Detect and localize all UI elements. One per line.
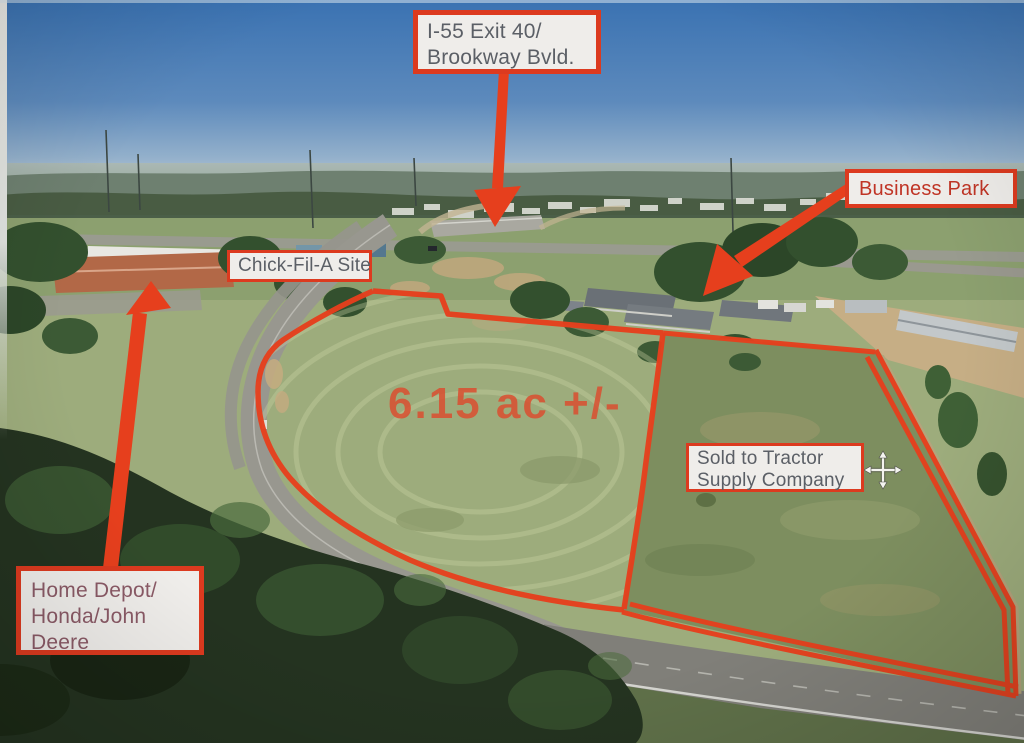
callout-sold-line1: Sold to Tractor [697, 448, 853, 470]
callout-home-depot-line3: Deere [31, 630, 189, 656]
callout-sold-line2: Supply Company [697, 470, 853, 492]
callout-i55-line2: Brookway Bvld. [427, 45, 587, 71]
callout-business-park-text: Business Park [859, 177, 1003, 201]
callout-business-park: Business Park [845, 169, 1017, 208]
callout-i55-exit: I-55 Exit 40/ Brookway Bvld. [413, 10, 601, 74]
callout-chick-fil-a-text: Chick-Fil-A Site [238, 254, 361, 277]
acreage-text: 6.15 ac +/- [388, 379, 622, 428]
callout-home-depot-line1: Home Depot/ [31, 578, 189, 604]
callout-home-depot: Home Depot/ Honda/John Deere [16, 566, 204, 655]
callout-sold-tractor-supply: Sold to Tractor Supply Company [686, 443, 864, 492]
callout-i55-line1: I-55 Exit 40/ [427, 19, 587, 45]
screen-glare [0, 0, 1024, 3]
callout-home-depot-line2: Honda/John [31, 604, 189, 630]
callout-chick-fil-a: Chick-Fil-A Site [227, 250, 372, 282]
aerial-photo: 6.15 ac +/- I-55 Exit 40/ Brookway Bvld.… [0, 0, 1024, 743]
screen-bezel-edge [0, 0, 7, 440]
